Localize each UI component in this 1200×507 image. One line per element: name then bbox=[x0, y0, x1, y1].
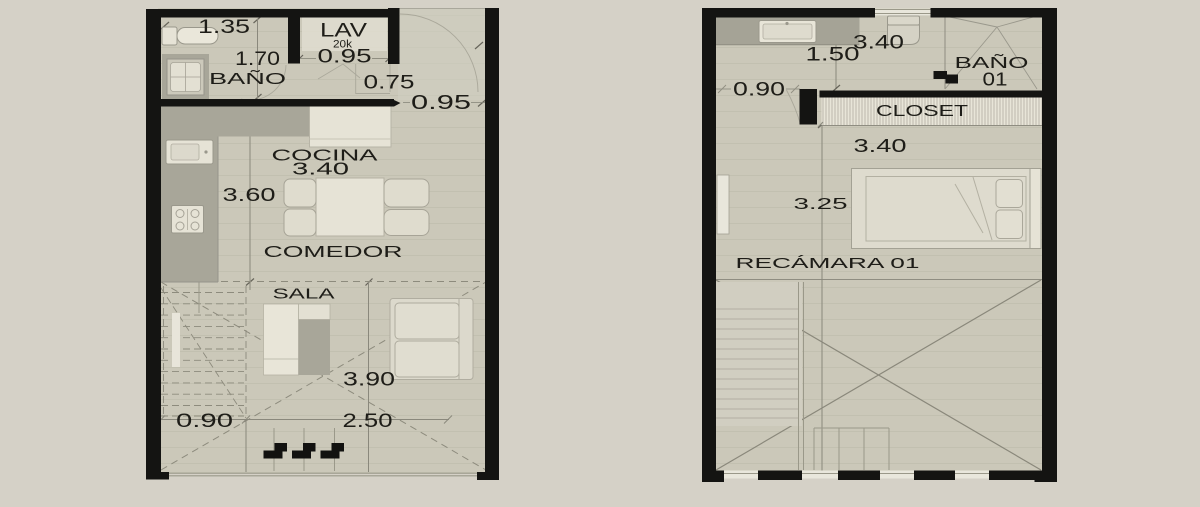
svg-text:CLOSET: CLOSET bbox=[876, 103, 968, 120]
svg-text:RECÁMARA 01: RECÁMARA 01 bbox=[736, 255, 920, 272]
svg-text:3.40: 3.40 bbox=[853, 33, 904, 54]
svg-text:3.90: 3.90 bbox=[343, 370, 395, 391]
svg-text:2.50: 2.50 bbox=[343, 410, 393, 432]
svg-text:3.60: 3.60 bbox=[223, 185, 276, 205]
svg-text:0.90: 0.90 bbox=[733, 80, 785, 101]
svg-text:3.40: 3.40 bbox=[854, 136, 907, 156]
svg-text:1.50: 1.50 bbox=[806, 45, 860, 66]
svg-text:SALA: SALA bbox=[273, 286, 335, 303]
svg-text:1.35: 1.35 bbox=[198, 17, 250, 38]
svg-text:0.75: 0.75 bbox=[364, 73, 415, 94]
svg-text:0.90: 0.90 bbox=[176, 410, 233, 432]
svg-text:1.70: 1.70 bbox=[235, 49, 280, 70]
svg-text:0.95: 0.95 bbox=[411, 92, 471, 114]
svg-text:BAÑO: BAÑO bbox=[209, 71, 286, 88]
svg-text:0.95: 0.95 bbox=[318, 47, 372, 68]
svg-text:3.25: 3.25 bbox=[794, 196, 848, 213]
svg-text:COMEDOR: COMEDOR bbox=[264, 244, 403, 261]
svg-text:01: 01 bbox=[983, 70, 1008, 90]
svg-text:3.40: 3.40 bbox=[292, 159, 349, 179]
